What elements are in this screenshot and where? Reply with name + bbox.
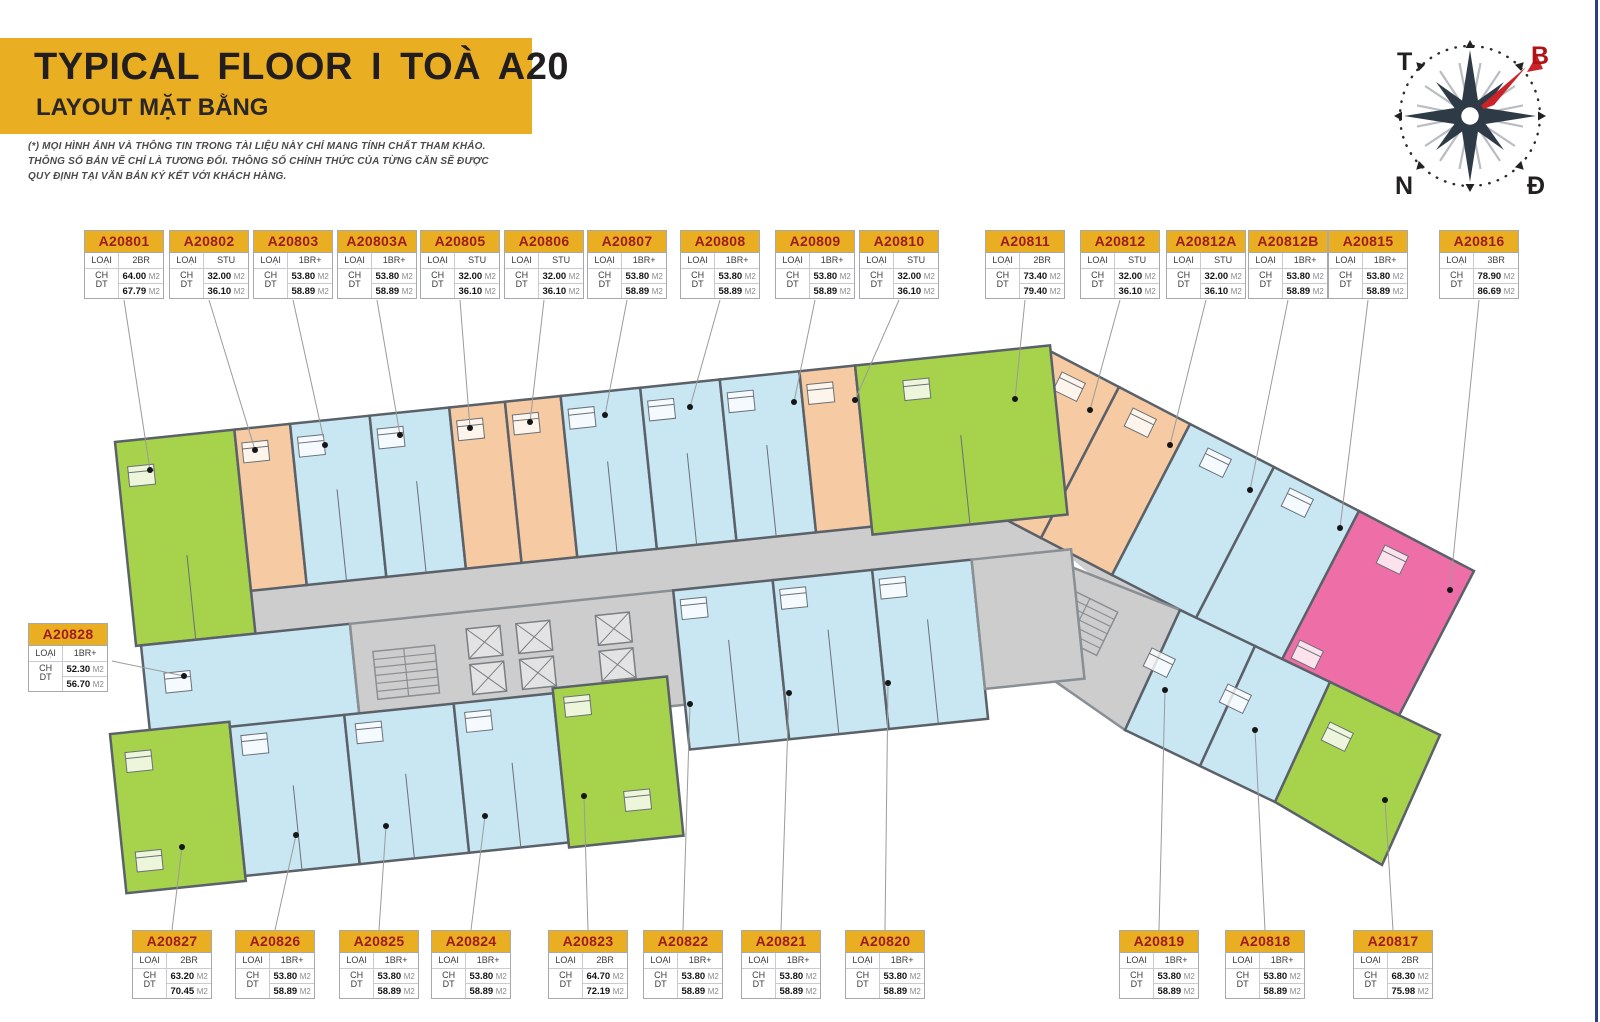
page: { "header": { "title": "TYPICAL FLOOR I … — [0, 0, 1600, 1022]
compass-letter-south: N — [1395, 172, 1413, 200]
compass-letter-west: T — [1397, 48, 1412, 76]
page-right-border — [1595, 0, 1598, 1022]
plan-core-bend — [972, 549, 1085, 689]
page-subtitle: LAYOUT MẶT BẰNG — [36, 94, 268, 122]
disclaimer-line-2: THÔNG SỐ BẢN VẼ CHỈ LÀ TƯƠNG ĐỐI. THÔNG … — [28, 154, 489, 169]
compass-letter-north: B — [1531, 42, 1549, 70]
compass-letter-east: Đ — [1527, 172, 1545, 200]
page-title: TYPICAL FLOOR I TOÀ A20 — [34, 46, 569, 89]
header-banner: TYPICAL FLOOR I TOÀ A20 LAYOUT MẶT BẰNG — [0, 38, 532, 134]
plan-unit-A20827 — [110, 722, 246, 893]
plan-unit-A20801 — [115, 430, 255, 646]
disclaimer-line-3: QUY ĐỊNH TẠI VĂN BẢN KÝ KẾT VỚI KHÁCH HÀ… — [28, 169, 489, 184]
compass-hub — [1458, 104, 1482, 128]
compass-icon: T B N Đ — [1380, 18, 1560, 203]
disclaimer-text: (*) MỌI HÌNH ẢNH VÀ THÔNG TIN TRONG TÀI … — [28, 139, 489, 184]
disclaimer-line-1: (*) MỌI HÌNH ẢNH VÀ THÔNG TIN TRONG TÀI … — [28, 139, 489, 154]
